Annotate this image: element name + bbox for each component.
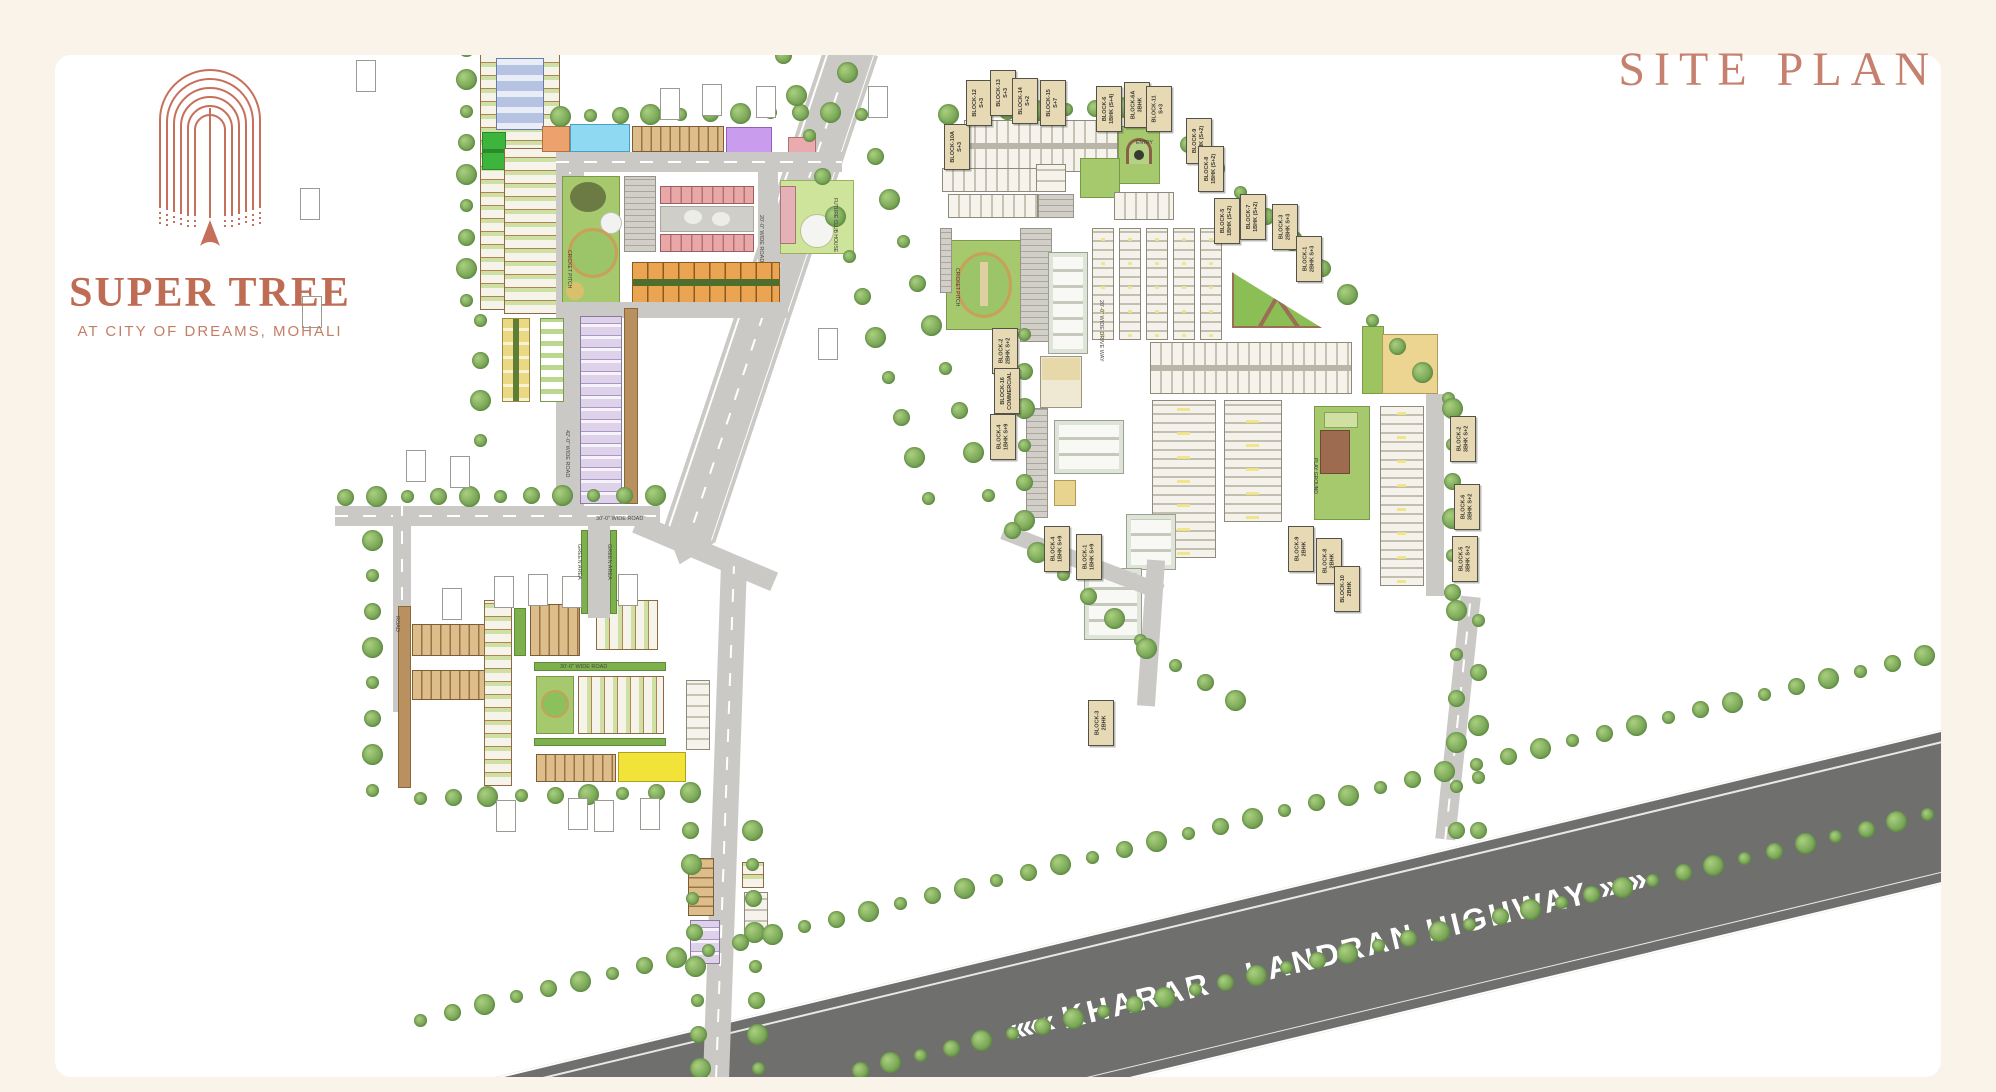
tree-icon: [1818, 668, 1839, 689]
tree-icon: [747, 1024, 768, 1045]
block-tag: BLOCK-12BHK S+3: [1296, 236, 1322, 282]
ne-core-col-5: [1200, 228, 1222, 340]
tree-icon: [364, 603, 381, 620]
plot-tag: [494, 576, 514, 608]
block-tag: BLOCK-92BHK: [1288, 526, 1314, 572]
ne-lower-cols-2: [1224, 400, 1282, 522]
brand-name: SUPER TREE: [60, 269, 360, 317]
purple-lot: [726, 127, 772, 155]
cricket-pitch-ring: [568, 228, 618, 278]
ne-left-rows-2: [948, 194, 1038, 218]
tree-icon: [938, 104, 959, 125]
tree-icon: [854, 288, 871, 305]
road-label: 20'-0" WIDE DRIVE WAY: [1096, 300, 1104, 360]
block-tag: BLOCK-12S+3: [966, 80, 992, 126]
tree-icon: [1675, 864, 1692, 881]
tree-icon: [904, 447, 925, 468]
tree-icon: [943, 1040, 960, 1057]
tree-icon: [414, 792, 427, 805]
tree-icon: [792, 104, 809, 121]
tree-icon: [1154, 987, 1175, 1008]
nw-tower-block: [496, 58, 544, 130]
tree-icon: [458, 229, 475, 246]
tree-icon: [1446, 600, 1467, 621]
tree-icon: [1169, 659, 1182, 672]
tree-icon: [366, 676, 379, 689]
amenity-label: FUTURE CLUB HOUSE: [830, 198, 838, 248]
block-tag-label: BLOCK-61BHK (S+4): [1102, 94, 1116, 124]
cyan-lot: [570, 124, 630, 152]
highway-label: ««« KHARAR - LANDRAN HIGHWAY »»»: [1003, 860, 1647, 1050]
tree-icon: [540, 980, 557, 997]
tree-icon: [1034, 1018, 1051, 1035]
tree-icon: [775, 55, 792, 64]
tree-icon: [858, 901, 879, 922]
apt-courtyard: [660, 206, 754, 232]
plot-tag: [594, 800, 614, 832]
tree-icon: [456, 164, 477, 185]
parking-nw: [624, 176, 656, 252]
tree-icon: [786, 85, 807, 106]
tree-icon: [798, 920, 811, 933]
tree-icon: [584, 109, 597, 122]
ne-core-col-4: [1173, 228, 1195, 340]
site-plan-canvas: ««« KHARAR - LANDRAN HIGHWAY »»» BLOCK-1…: [0, 0, 1996, 1092]
plot-tag: [868, 86, 888, 118]
tree-icon: [1858, 821, 1875, 838]
tree-icon: [893, 409, 910, 426]
tree-icon: [855, 108, 868, 121]
tree-icon: [1446, 732, 1467, 753]
tree-icon: [1766, 843, 1783, 860]
road-h1: [556, 152, 842, 172]
page-title: SITE PLAN: [1618, 42, 1938, 97]
park-oval-dark: [570, 182, 606, 212]
tree-icon: [1738, 852, 1751, 865]
tree-icon: [1626, 715, 1647, 736]
block-tag: BLOCK-11S+3: [1146, 86, 1172, 132]
tree-icon: [430, 488, 447, 505]
tree-icon: [909, 275, 926, 292]
ne-left-rows-1: [942, 168, 1038, 192]
tree-icon: [1470, 758, 1483, 771]
tree-icon: [1004, 522, 1021, 539]
tree-icon: [963, 442, 984, 463]
plot-tag: [442, 588, 462, 620]
block-tag: BLOCK-81BHK (S+2): [1198, 146, 1224, 192]
block-tag-label: BLOCK-51BHK (S+2): [1220, 206, 1234, 236]
tree-icon: [366, 569, 379, 582]
brand-block: SUPER TREE AT CITY OF DREAMS, MOHALI: [60, 58, 360, 340]
tree-icon: [616, 787, 629, 800]
block-tag: BLOCK-102BHK: [1334, 566, 1360, 612]
block-tag: BLOCK-51BHK (S+2): [1214, 198, 1240, 244]
tree-icon: [954, 878, 975, 899]
tree-icon: [640, 104, 661, 125]
tree-icon: [1116, 841, 1133, 858]
tree-icon: [1080, 588, 1097, 605]
tree-icon: [1374, 781, 1387, 794]
tree-icon: [1854, 665, 1867, 678]
tree-icon: [550, 106, 571, 127]
ne-tower-col: [1048, 252, 1088, 354]
tree-icon: [897, 235, 910, 248]
tree-icon: [814, 168, 831, 185]
block-tag: BLOCK-53BHK S+2: [1452, 536, 1478, 582]
block-tag: BLOCK-15S+7: [1040, 80, 1066, 126]
sw-plot-col-a: [484, 600, 512, 786]
tree-icon: [364, 710, 381, 727]
block-tag-label: BLOCK-32BHK S+3: [1278, 214, 1292, 240]
tree-icon: [366, 486, 387, 507]
tree-icon: [1412, 362, 1433, 383]
tree-icon: [990, 874, 1003, 887]
plot-tag: [406, 450, 426, 482]
tree-icon: [1126, 996, 1143, 1013]
tree-icon: [1612, 877, 1633, 898]
block-tag-label: BLOCK-10AS+3: [950, 131, 964, 162]
tree-icon: [686, 924, 703, 941]
tree-icon: [570, 971, 591, 992]
block-tag: BLOCK-71BHK (S+2): [1240, 194, 1266, 240]
tree-icon: [460, 199, 473, 212]
tree-icon: [680, 782, 701, 803]
tree-icon: [690, 1026, 707, 1043]
ne-row-2: [1114, 192, 1174, 220]
tree-icon: [852, 1062, 869, 1078]
tree-icon: [865, 327, 886, 348]
apt-pink-row-1: [660, 186, 754, 204]
ne-core-col-2: [1119, 228, 1141, 340]
tree-icon: [1182, 827, 1195, 840]
block-tag-label: BLOCK-11BHK S+9: [1082, 544, 1096, 570]
road-label: GREEN AREA: [604, 544, 612, 604]
sw-plot-cols-c: [578, 676, 664, 734]
tree-icon: [1470, 664, 1487, 681]
tree-icon: [445, 789, 462, 806]
block-tag: BLOCK-41BHK S+9: [1044, 526, 1070, 572]
block-tag: BLOCK-23BHK S+2: [1450, 416, 1476, 462]
tree-icon: [1463, 918, 1476, 931]
tree-icon: [1016, 474, 1033, 491]
apt-oval-1: [684, 210, 702, 224]
block-tag-label: BLOCK-63BHK S+2: [1460, 494, 1474, 520]
tree-icon: [820, 102, 841, 123]
road-label: 30'-0" WIDE ROAD: [596, 516, 656, 524]
block-tag: BLOCK-16COMMERCIAL: [994, 368, 1020, 414]
tree-icon: [922, 492, 935, 505]
plot-tag: [640, 798, 660, 830]
tree-icon: [666, 947, 687, 968]
tree-icon: [1788, 678, 1805, 695]
tree-icon: [1692, 701, 1709, 718]
ne-parking-3: [1026, 408, 1048, 518]
tree-icon: [587, 489, 600, 502]
tree-icon: [1212, 818, 1229, 835]
green-units-col: [540, 318, 564, 402]
green-verge-w: [581, 530, 588, 614]
sw-green-median: [514, 608, 526, 656]
block-tag: BLOCK-32BHK: [1088, 700, 1114, 746]
tree-icon: [414, 1014, 427, 1027]
tree-icon: [1921, 808, 1934, 821]
tree-icon: [1006, 1027, 1019, 1040]
tree-icon: [951, 402, 968, 419]
tree-icon: [477, 786, 498, 807]
tree-icon: [1018, 439, 1031, 452]
tree-icon: [1366, 314, 1379, 327]
plot-tag: [450, 456, 470, 488]
tree-icon: [1389, 338, 1406, 355]
tree-icon: [1450, 648, 1463, 661]
block-tag-label: BLOCK-41BHK S+9: [996, 424, 1010, 450]
sw-verge-2: [534, 738, 666, 746]
apt-oval-2: [712, 212, 730, 226]
yellow-tower-pair: [502, 318, 530, 402]
tree-icon: [1434, 761, 1455, 782]
tan-boundary-ne: [624, 308, 638, 504]
tree-icon: [645, 485, 666, 506]
tree-icon: [1050, 854, 1071, 875]
road-label: 20'-0" WIDE ROAD: [756, 215, 764, 275]
tree-icon: [1146, 831, 1167, 852]
peach-lot: [542, 126, 570, 152]
tree-icon: [472, 352, 489, 369]
tree-icon: [362, 744, 383, 765]
tree-icon: [1662, 711, 1675, 724]
tree-icon: [682, 822, 699, 839]
tree-icon: [1472, 614, 1485, 627]
tree-icon: [523, 487, 540, 504]
tree-icon: [748, 992, 765, 1009]
sw-park-circle: [541, 690, 569, 718]
tree-icon: [460, 105, 473, 118]
tree-icon: [1829, 830, 1842, 843]
tree-icon: [691, 994, 704, 1007]
tree-icon: [458, 55, 475, 57]
tree-icon: [686, 892, 699, 905]
tree-icon: [843, 250, 856, 263]
block-tag-label: BLOCK-13S+3: [996, 79, 1010, 107]
tree-icon: [1189, 983, 1202, 996]
tree-icon: [474, 994, 495, 1015]
tree-icon: [456, 258, 477, 279]
tree-icon: [470, 390, 491, 411]
tree-icon: [1018, 328, 1031, 341]
tree-icon: [730, 103, 751, 124]
block-tag-label: BLOCK-23BHK S+2: [1456, 426, 1470, 452]
plot-tag: [756, 86, 776, 118]
tree-icon: [1429, 921, 1450, 942]
shop-row: [632, 126, 724, 152]
ne-right-road: [1426, 394, 1444, 596]
block-tag: BLOCK-61BHK (S+4): [1096, 86, 1122, 132]
road-label: GREEN AREA: [574, 544, 582, 604]
tree-icon: [1795, 833, 1816, 854]
tree-icon: [1337, 284, 1358, 305]
tree-icon: [882, 371, 895, 384]
tree-icon: [894, 897, 907, 910]
tree-icon: [456, 69, 477, 90]
block-tag-label: BLOCK-22BHK S+2: [998, 338, 1012, 364]
tree-icon: [606, 967, 619, 980]
tree-icon: [879, 189, 900, 210]
tree-icon: [732, 934, 749, 951]
block-tag-label: BLOCK-53BHK S+2: [1458, 546, 1472, 572]
tree-icon: [1520, 899, 1541, 920]
tree-icon: [1444, 584, 1461, 601]
tree-icon: [702, 944, 715, 957]
road-label: 42'-0" WIDE ROAD: [562, 430, 570, 490]
tree-icon: [1020, 864, 1037, 881]
tree-icon: [474, 314, 487, 327]
tree-icon: [1309, 952, 1326, 969]
block-tag: BLOCK-14S+2: [1012, 78, 1038, 124]
tree-icon: [474, 434, 487, 447]
ne-core-col-3: [1146, 228, 1168, 340]
tree-icon: [982, 489, 995, 502]
yellow-lot: [618, 752, 686, 782]
sw-tan-row-1: [412, 624, 486, 656]
block-tag-label: BLOCK-12S+3: [972, 89, 986, 117]
block-tag-label: BLOCK-14S+2: [1018, 87, 1032, 115]
tree-icon: [366, 784, 379, 797]
tree-icon: [515, 789, 528, 802]
tree-icon: [636, 957, 653, 974]
plot-tag: [702, 84, 722, 116]
block-tag-label: BLOCK-81BHK (S+2): [1204, 154, 1218, 184]
tree-icon: [1404, 771, 1421, 788]
block-tag-label: BLOCK-6A3BHK: [1130, 91, 1144, 119]
tree-icon: [685, 956, 706, 977]
block-tag-label: BLOCK-92BHK: [1294, 537, 1308, 561]
tree-icon: [1530, 738, 1551, 759]
sand-wedge: [1054, 480, 1076, 506]
tree-icon: [746, 858, 759, 871]
sw-tan-col-b: [530, 604, 580, 656]
tree-icon: [1278, 804, 1291, 817]
tree-icon: [1136, 638, 1157, 659]
tree-icon: [1308, 794, 1325, 811]
basketball-court: [1320, 430, 1350, 474]
club-building: [780, 186, 796, 244]
tree-icon: [1566, 734, 1579, 747]
block-tag: BLOCK-32BHK S+3: [1272, 204, 1298, 250]
tree-icon: [1338, 785, 1359, 806]
tree-icon: [494, 490, 507, 503]
ne-towers-2: [1054, 420, 1124, 474]
tree-icon: [1242, 808, 1263, 829]
tree-icon: [1225, 690, 1246, 711]
lavender-strip: [580, 316, 622, 504]
tree-icon: [547, 787, 564, 804]
tree-icon: [939, 362, 952, 375]
tree-icon: [1104, 608, 1125, 629]
ne-band-2: [1150, 342, 1352, 394]
tree-icon: [362, 637, 383, 658]
commercial-top: [1042, 358, 1080, 380]
tree-icon: [1596, 725, 1613, 742]
tree-icon: [1722, 692, 1743, 713]
plot-tag: [818, 328, 838, 360]
tree-icon: [1758, 688, 1771, 701]
s-strip-bldg-0: [686, 680, 710, 750]
tree-icon: [1337, 943, 1358, 964]
plot-tag: [568, 798, 588, 830]
tree-icon: [1492, 908, 1509, 925]
block-tag-label: BLOCK-11S+3: [1152, 95, 1166, 122]
tree-icon: [1914, 645, 1935, 666]
block-tag-label: BLOCK-16COMMERCIAL: [1000, 372, 1014, 410]
block-tag: BLOCK-10AS+3: [944, 124, 970, 170]
tree-icon: [828, 911, 845, 928]
tennis-court: [1324, 412, 1358, 428]
tree-icon: [612, 107, 629, 124]
block-tag-label: BLOCK-15S+7: [1046, 89, 1060, 117]
tree-icon: [690, 1058, 711, 1078]
tree-icon: [742, 820, 763, 841]
amenity-label: CRICKET PITCH: [564, 250, 572, 300]
tree-icon: [362, 530, 383, 551]
tree-icon: [1500, 748, 1517, 765]
tree-icon: [401, 490, 414, 503]
tree-icon: [616, 487, 633, 504]
tree-icon: [1555, 896, 1568, 909]
sw-tan-row-2: [412, 670, 488, 700]
block-tag-label: BLOCK-32BHK: [1094, 711, 1108, 735]
cricket-pitch: [980, 262, 988, 306]
entry-dot: [1134, 150, 1144, 160]
block-tag-label: BLOCK-102BHK: [1340, 575, 1354, 603]
block-tag-label: BLOCK-12BHK S+3: [1302, 246, 1316, 272]
tree-icon: [1086, 851, 1099, 864]
block-tag-label: BLOCK-41BHK S+9: [1050, 536, 1064, 562]
tree-icon: [459, 486, 480, 507]
nw-green-squares: [482, 132, 506, 170]
plot-tag: [618, 574, 638, 606]
tree-icon: [1197, 674, 1214, 691]
ne-parking-1: [1038, 194, 1074, 218]
tree-icon: [924, 887, 941, 904]
ne-green-strip: [1362, 326, 1384, 394]
ne-courtyard-bldg: [1036, 164, 1066, 192]
amenity-label: ENTRY: [1136, 140, 1186, 148]
block-tag: BLOCK-11BHK S+9: [1076, 534, 1102, 580]
brand-tagline: AT CITY OF DREAMS, MOHALI: [60, 323, 360, 340]
tree-icon: [745, 890, 762, 907]
tree-icon: [1470, 822, 1487, 839]
tree-icon: [1468, 715, 1489, 736]
tree-icon: [458, 134, 475, 151]
plot-tag: [496, 800, 516, 832]
block-tag-label: BLOCK-71BHK (S+2): [1246, 202, 1260, 232]
sw-bottom-row: [536, 754, 616, 782]
tree-icon: [1884, 655, 1901, 672]
tree-icon: [1246, 965, 1267, 986]
tree-icon: [752, 1062, 765, 1075]
tree-icon: [867, 148, 884, 165]
tree-icon: [1448, 690, 1465, 707]
tree-icon: [1646, 874, 1659, 887]
ne-right-col: [1380, 406, 1424, 586]
plot-tag: [528, 574, 548, 606]
apt-pink-row-2: [660, 234, 754, 252]
tree-icon: [460, 294, 473, 307]
tree-icon: [681, 854, 702, 875]
tree-icon: [510, 990, 523, 1003]
tree-icon: [762, 924, 783, 945]
amenity-label: CRICKET PITCH: [952, 268, 960, 318]
